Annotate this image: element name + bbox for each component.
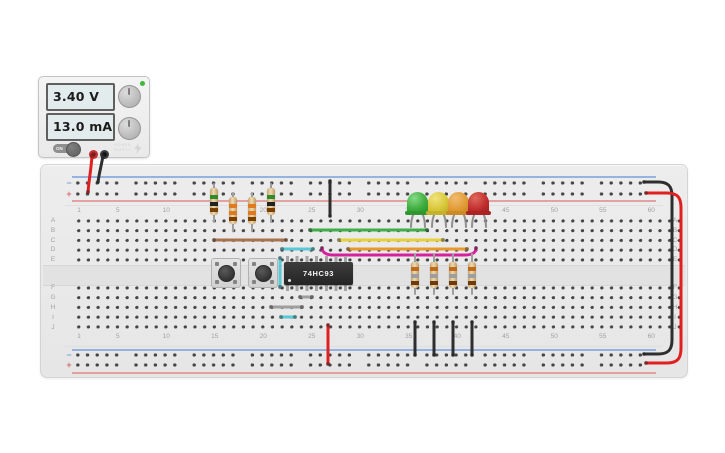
ic-pin1-dot <box>288 279 291 282</box>
resistor-right-2[interactable] <box>430 253 438 295</box>
black-rail-bridge-wire[interactable] <box>644 182 672 354</box>
resistor-left-2[interactable] <box>229 192 237 232</box>
resistor-left-1[interactable] <box>210 183 218 223</box>
red-rail-bridge-wire[interactable] <box>646 193 681 363</box>
resistor-right-4[interactable] <box>468 253 476 295</box>
psu-red-wire[interactable] <box>88 156 92 192</box>
resistor-left-4[interactable] <box>267 183 275 223</box>
led-green[interactable] <box>407 192 428 214</box>
circuit-canvas: − + − + 1 5 10 15 20 25 30 35 40 45 50 5… <box>0 0 725 453</box>
wires-layer <box>0 0 725 453</box>
ic-label: 74HC93 <box>284 262 353 285</box>
resistor-right-1[interactable] <box>411 253 419 295</box>
pushbutton-1[interactable] <box>211 258 241 288</box>
pushbutton-cap[interactable] <box>218 265 235 282</box>
led-red[interactable] <box>468 192 489 214</box>
psu-black-wire[interactable] <box>98 156 103 182</box>
resistor-left-3[interactable] <box>248 192 256 232</box>
pushbutton-2[interactable] <box>248 258 278 288</box>
counter-ic[interactable]: 74HC93 <box>284 262 353 285</box>
ic-pins-bottom <box>286 285 350 291</box>
pushbutton-cap[interactable] <box>255 265 272 282</box>
resistor-right-3[interactable] <box>449 253 457 295</box>
